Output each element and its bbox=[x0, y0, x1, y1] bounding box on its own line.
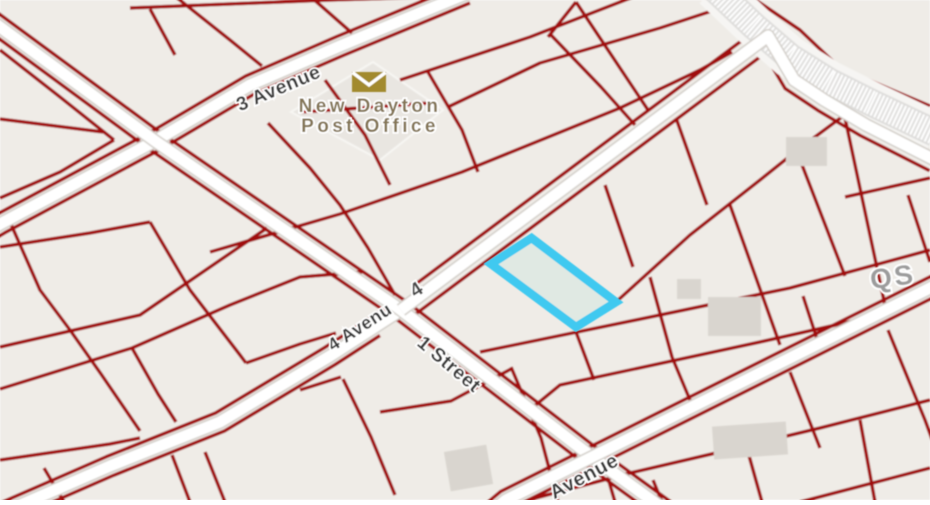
svg-text:Post Office: Post Office bbox=[301, 116, 439, 137]
svg-text:QS: QS bbox=[868, 258, 917, 295]
svg-text:New Dayton: New Dayton bbox=[299, 96, 442, 117]
